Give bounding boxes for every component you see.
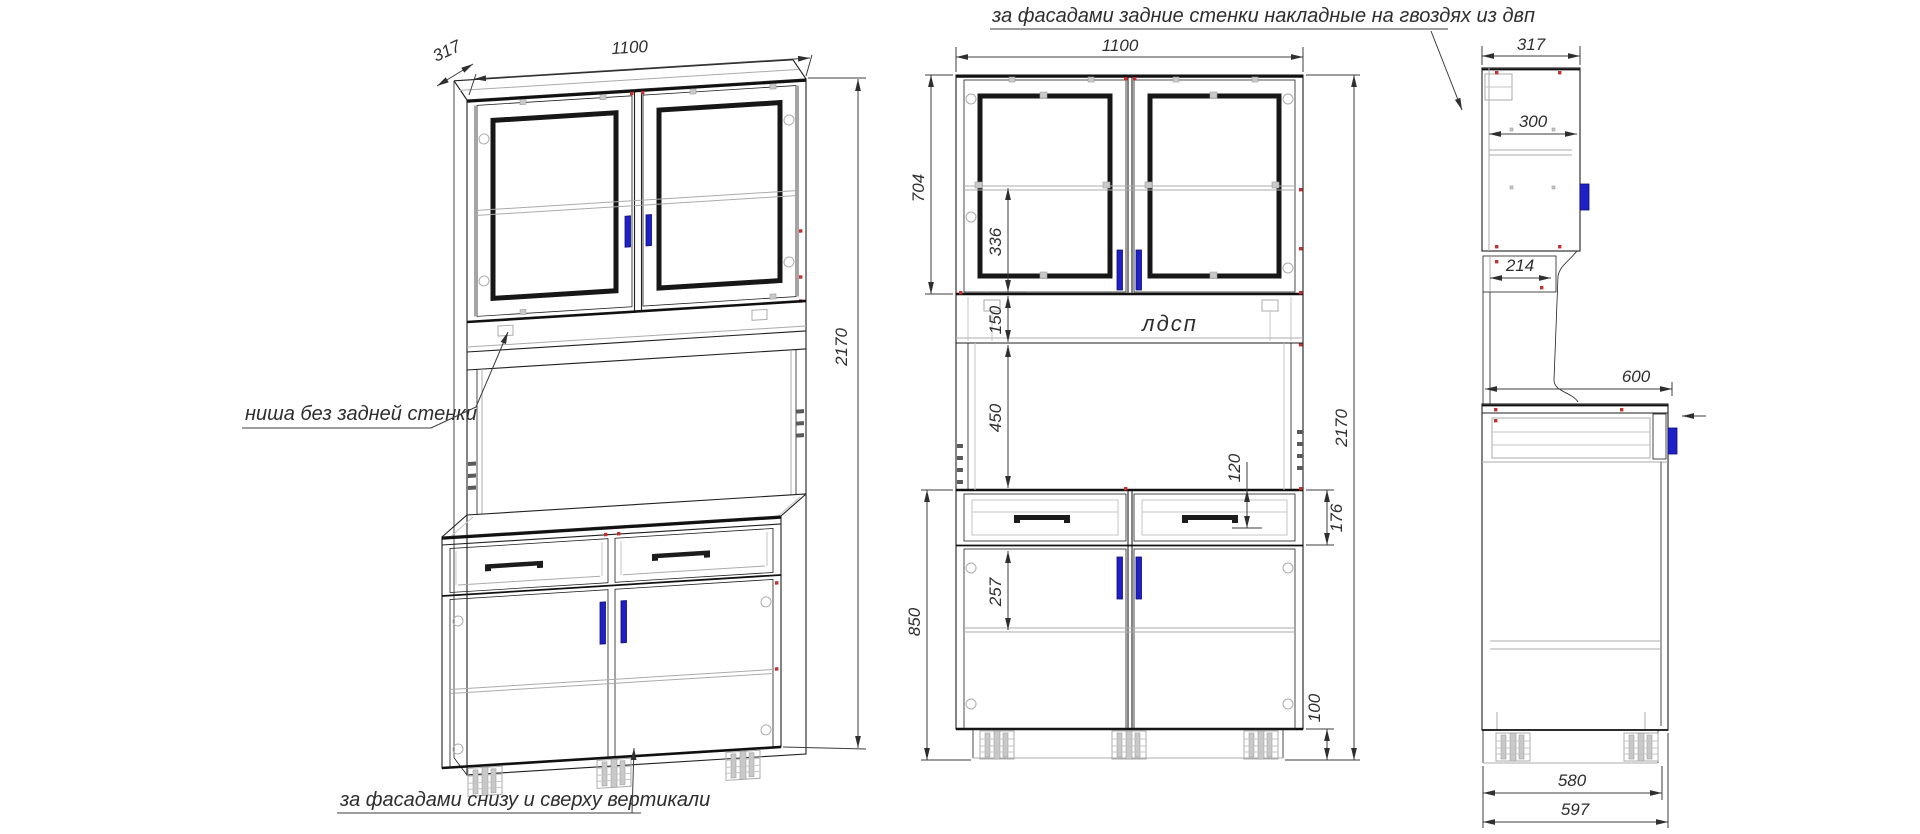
iso-door-left xyxy=(450,590,608,768)
front-dim-total-height: 2170 xyxy=(1332,409,1351,448)
material-label: лдсп xyxy=(1140,311,1198,336)
iso-dim-depth: 317 xyxy=(430,36,464,65)
front-upper-handle-left xyxy=(1117,250,1123,290)
isometric-view: 317 1100 2170 xyxy=(430,36,866,798)
iso-base-handle-right xyxy=(621,601,627,643)
technical-drawing-page: 317 1100 2170 xyxy=(0,0,1920,834)
front-drawer-handle-right xyxy=(1182,515,1238,520)
iso-upper-door-right xyxy=(643,86,796,306)
back-panels-note-text: за фасадами задние стенки накладные на г… xyxy=(991,5,1535,27)
side-drawer-front xyxy=(1653,414,1666,459)
side-dim-shelf-depth: 214 xyxy=(1505,256,1534,275)
side-view: 317 300 214 600 580 597 xyxy=(1482,35,1706,828)
iso-dim-height: 2170 xyxy=(832,328,851,367)
side-dim-depth: 317 xyxy=(1517,35,1546,54)
annotation-facade-verticals: за фасадами снизу и сверху вертикали xyxy=(337,748,710,813)
front-dim-base-height: 850 xyxy=(905,607,924,636)
side-upper-handle xyxy=(1580,184,1589,210)
iso-upper-handle-left xyxy=(625,216,631,247)
iso-drawer-handle-left xyxy=(485,561,543,569)
iso-dim-width: 1100 xyxy=(611,37,649,58)
cabinet-drawing-canvas: 317 1100 2170 xyxy=(0,0,1920,834)
side-base-handle xyxy=(1668,428,1677,454)
side-dim-base-inner-depth: 580 xyxy=(1558,771,1587,790)
front-base-handle-right xyxy=(1136,557,1142,599)
front-dim-niche-height: 450 xyxy=(986,403,1005,432)
front-door-right xyxy=(1134,549,1295,729)
front-upper-handle-right xyxy=(1136,250,1142,290)
facade-verticals-note-text: за фасадами снизу и сверху вертикали xyxy=(339,789,710,811)
front-dim-width: 1100 xyxy=(1102,36,1139,55)
iso-door-right xyxy=(615,579,773,757)
front-dim-door-offset: 257 xyxy=(986,577,1005,607)
front-drawer-handle-left xyxy=(1014,515,1070,520)
iso-upper-handle-right xyxy=(646,215,652,246)
side-dim-inner-depth: 300 xyxy=(1519,112,1548,131)
annotation-niche: ниша без задней стенки xyxy=(242,332,508,428)
front-door-left xyxy=(964,549,1126,729)
front-dim-drawer-front: 176 xyxy=(1327,503,1346,532)
front-dim-upper-height: 704 xyxy=(909,174,928,202)
iso-base-handle-left xyxy=(600,602,606,644)
side-dim-base-total-depth: 597 xyxy=(1561,800,1590,819)
side-dim-base-depth: 600 xyxy=(1622,367,1651,386)
iso-drawer-handle-right xyxy=(652,550,710,558)
front-dim-shelf-gap: 150 xyxy=(986,305,1005,334)
front-base-handle-left xyxy=(1117,557,1123,599)
front-dim-plinth: 100 xyxy=(1305,693,1324,722)
front-dim-glass-offset: 336 xyxy=(986,227,1005,256)
front-dim-drawer-inner: 120 xyxy=(1225,453,1244,482)
front-view: 1100 704 336 150 450 257 850 120 176 xyxy=(905,36,1360,760)
niche-note-text: ниша без задней стенки xyxy=(245,403,477,425)
